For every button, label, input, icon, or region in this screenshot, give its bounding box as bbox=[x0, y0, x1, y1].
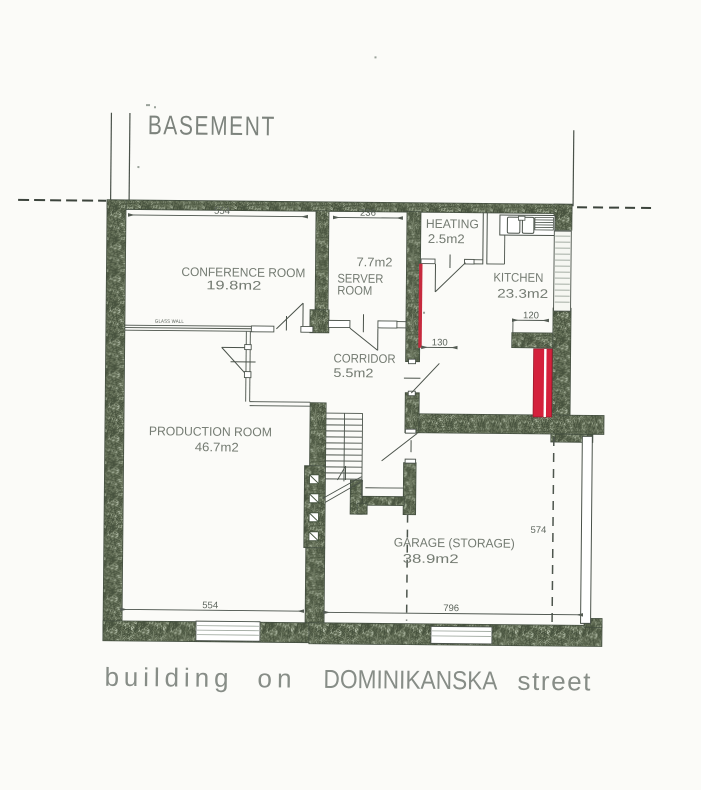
svg-text:HEATING: HEATING bbox=[426, 217, 479, 232]
svg-text:574: 574 bbox=[530, 525, 546, 536]
svg-text:CORRIDOR: CORRIDOR bbox=[334, 351, 396, 366]
svg-text:5.5m2: 5.5m2 bbox=[333, 366, 373, 380]
svg-text:38.9m2: 38.9m2 bbox=[403, 552, 459, 567]
svg-text:130: 130 bbox=[432, 337, 448, 348]
svg-text:BASEMENT: BASEMENT bbox=[148, 110, 276, 141]
svg-text:street: street bbox=[517, 666, 591, 697]
svg-text:GARAGE (STORAGE): GARAGE (STORAGE) bbox=[394, 536, 515, 551]
svg-text:19.8m2: 19.8m2 bbox=[206, 278, 261, 293]
svg-text:KITCHEN: KITCHEN bbox=[493, 270, 543, 284]
svg-text:23.3m2: 23.3m2 bbox=[497, 287, 548, 301]
svg-text:2.5m2: 2.5m2 bbox=[428, 232, 465, 246]
svg-text:554: 554 bbox=[202, 600, 218, 611]
svg-text:796: 796 bbox=[443, 603, 459, 614]
svg-text:ROOM: ROOM bbox=[337, 283, 372, 297]
svg-text:554: 554 bbox=[214, 206, 230, 217]
svg-text:236: 236 bbox=[360, 208, 376, 219]
svg-text:PRODUCTION ROOM: PRODUCTION ROOM bbox=[149, 424, 272, 439]
svg-text:DOMINIKANSKA: DOMINIKANSKA bbox=[323, 664, 498, 696]
svg-text:GLASS WALL: GLASS WALL bbox=[155, 319, 184, 325]
svg-text:120: 120 bbox=[523, 310, 539, 321]
svg-text:46.7m2: 46.7m2 bbox=[195, 440, 239, 454]
svg-text:7.7m2: 7.7m2 bbox=[356, 255, 392, 269]
